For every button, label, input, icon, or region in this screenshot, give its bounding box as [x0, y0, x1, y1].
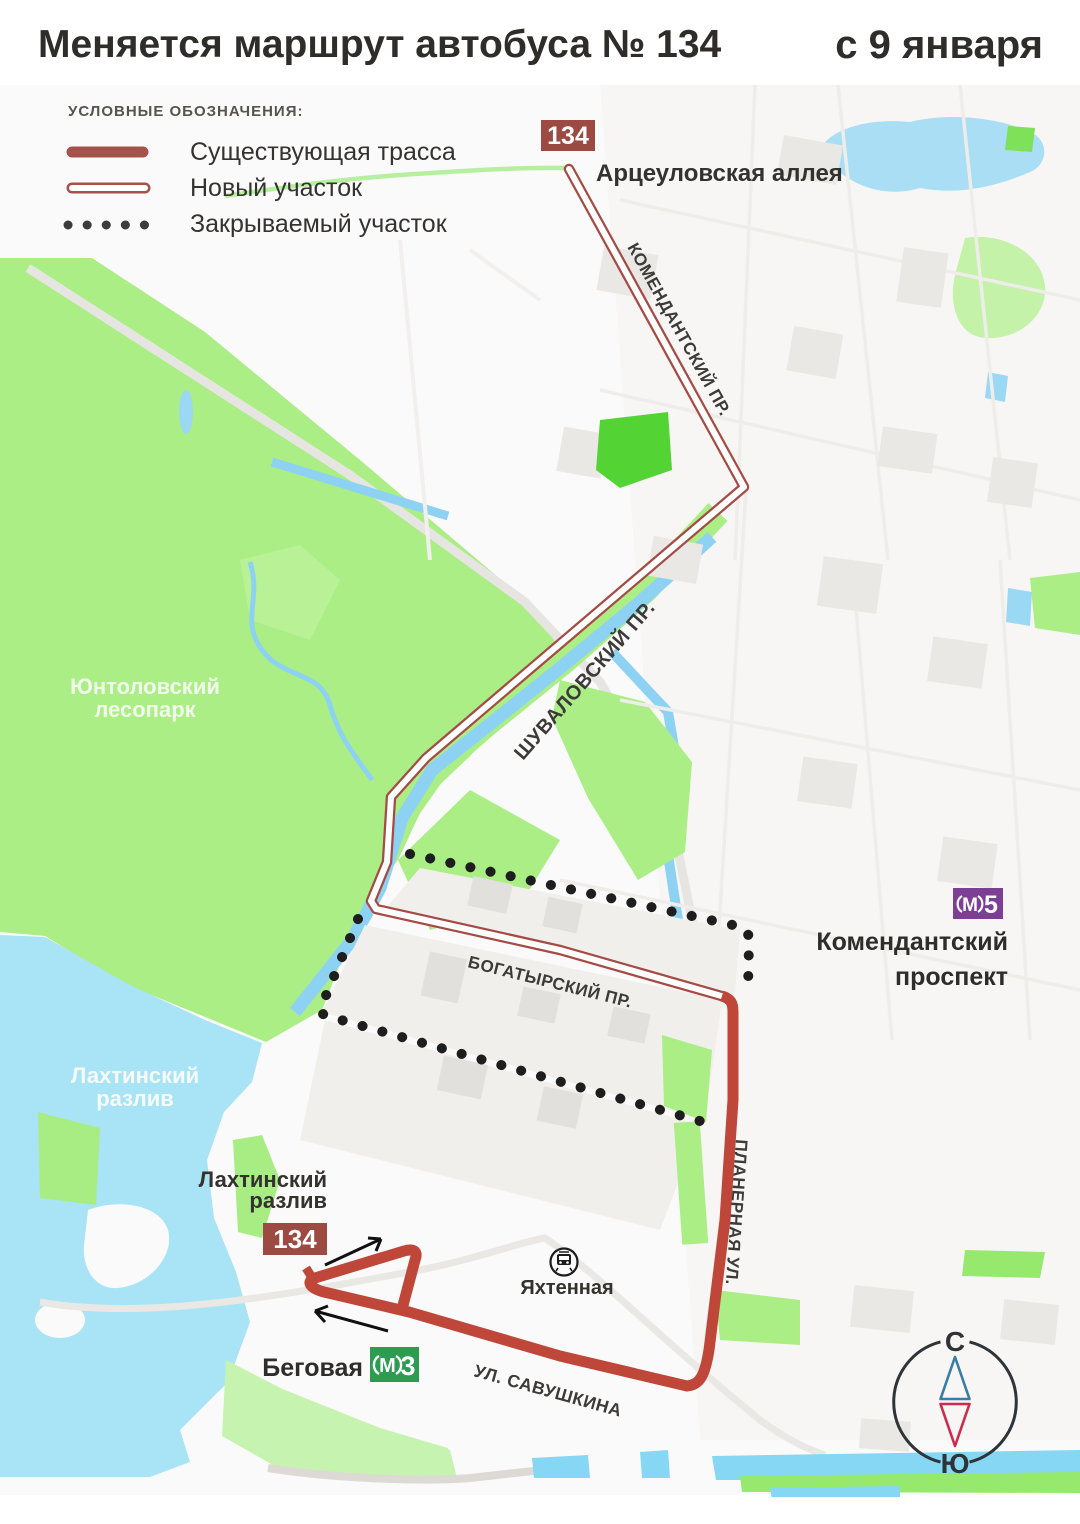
svg-text:УСЛОВНЫЕ ОБОЗНАЧЕНИЯ:: УСЛОВНЫЕ ОБОЗНАЧЕНИЯ: [68, 103, 303, 120]
svg-text:Беговая: Беговая [262, 1354, 363, 1382]
svg-text:3: 3 [400, 1351, 415, 1381]
svg-text:134: 134 [273, 1224, 317, 1254]
svg-text:проспект: проспект [895, 963, 1008, 991]
svg-text:разлив: разлив [249, 1188, 327, 1213]
svg-text:5: 5 [984, 891, 998, 919]
svg-text:Новый участок: Новый участок [190, 174, 363, 202]
svg-text:Арцеуловская аллея: Арцеуловская аллея [596, 160, 843, 187]
svg-text:Меняется маршрут автобуса № 13: Меняется маршрут автобуса № 134 [38, 23, 722, 66]
svg-text:с 9 января: с 9 января [835, 23, 1043, 67]
svg-text:Существующая трасса: Существующая трасса [190, 138, 456, 166]
svg-text:Яхтенная: Яхтенная [520, 1277, 613, 1299]
svg-text:С: С [945, 1326, 965, 1357]
svg-text:Комендантский: Комендантский [816, 928, 1008, 956]
svg-text:Ю: Ю [941, 1448, 970, 1479]
svg-text:134: 134 [547, 122, 589, 150]
svg-text:Лахтинский: Лахтинский [71, 1063, 199, 1088]
svg-text:М: М [379, 1355, 396, 1377]
svg-text:Юнтоловский: Юнтоловский [70, 674, 220, 699]
svg-text:разлив: разлив [96, 1086, 174, 1111]
svg-text:лесопарк: лесопарк [94, 697, 196, 722]
svg-text:М: М [962, 895, 978, 916]
svg-text:Закрываемый участок: Закрываемый участок [190, 210, 448, 238]
